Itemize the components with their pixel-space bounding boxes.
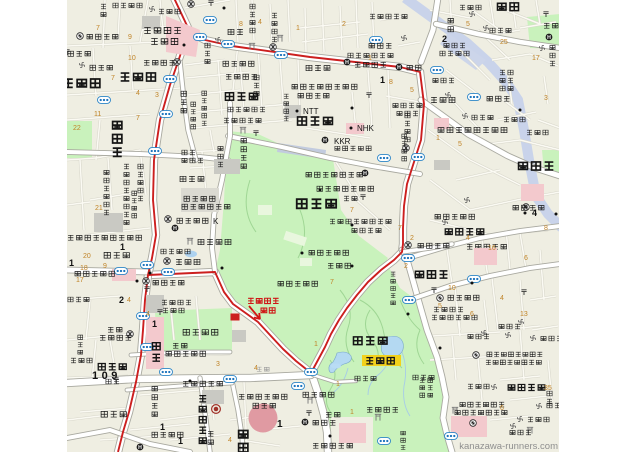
svg-text:10: 10 (128, 55, 136, 62)
svg-text:8: 8 (239, 21, 243, 28)
svg-text:4: 4 (228, 437, 232, 444)
svg-text:5: 5 (466, 21, 470, 28)
svg-text:7: 7 (330, 279, 334, 286)
svg-text:5: 5 (410, 87, 414, 94)
svg-text:H: H (363, 171, 367, 177)
svg-text:1: 1 (350, 409, 354, 416)
svg-text:6: 6 (500, 405, 504, 412)
svg-text:H: H (345, 60, 349, 66)
svg-text:10: 10 (448, 285, 456, 292)
svg-text:4: 4 (254, 365, 258, 372)
svg-text:25: 25 (500, 39, 508, 46)
svg-text:2: 2 (404, 263, 408, 270)
svg-text:4: 4 (466, 235, 470, 242)
svg-text:5: 5 (458, 141, 462, 148)
svg-text:H: H (323, 138, 327, 144)
svg-text:1: 1 (69, 258, 74, 268)
svg-text:3: 3 (216, 361, 220, 368)
svg-text:21: 21 (95, 205, 103, 212)
svg-text:17: 17 (76, 277, 84, 284)
svg-text:1: 1 (314, 341, 318, 348)
svg-text:7: 7 (96, 25, 100, 32)
svg-text:2: 2 (442, 34, 447, 44)
svg-text:6: 6 (524, 255, 528, 262)
svg-text:4: 4 (258, 19, 262, 26)
svg-text:3: 3 (155, 92, 159, 99)
svg-text:9: 9 (128, 34, 132, 41)
svg-text:1: 1 (178, 436, 183, 446)
svg-text:1: 1 (380, 75, 385, 85)
svg-text:20: 20 (83, 253, 91, 260)
svg-text:22: 22 (73, 125, 81, 132)
svg-text:1: 1 (160, 422, 165, 432)
svg-text:5: 5 (438, 303, 442, 310)
svg-text:K: K (213, 217, 219, 226)
svg-text:2: 2 (410, 235, 414, 242)
svg-text:1: 1 (120, 242, 125, 252)
svg-text:1: 1 (296, 25, 300, 32)
svg-text:4: 4 (136, 90, 140, 97)
svg-text:H: H (397, 65, 401, 71)
svg-text:1: 1 (436, 135, 440, 142)
svg-text:17: 17 (532, 55, 540, 62)
svg-text:NTT: NTT (303, 107, 319, 116)
svg-text:4: 4 (532, 208, 537, 218)
svg-text:2: 2 (119, 295, 124, 305)
svg-text:35: 35 (544, 385, 552, 392)
svg-text:NHK: NHK (357, 124, 375, 133)
svg-text:9: 9 (103, 263, 107, 270)
svg-text:8: 8 (389, 79, 393, 86)
svg-text:6: 6 (470, 311, 474, 318)
svg-text:H: H (547, 35, 551, 41)
svg-text:8: 8 (544, 225, 548, 232)
svg-text:1: 1 (277, 419, 283, 430)
svg-text:13: 13 (520, 311, 528, 318)
svg-text:1: 1 (368, 55, 372, 62)
svg-text:7: 7 (398, 225, 402, 232)
svg-text:1: 1 (336, 381, 340, 388)
svg-text:3: 3 (544, 95, 548, 102)
svg-text:4: 4 (146, 311, 150, 318)
svg-text:7: 7 (111, 75, 115, 82)
svg-text:4: 4 (500, 295, 504, 302)
svg-text:H: H (173, 226, 177, 232)
svg-text:kanazawa-runners.com: kanazawa-runners.com (459, 441, 558, 452)
svg-text:4: 4 (127, 297, 131, 304)
svg-text:1: 1 (152, 319, 157, 329)
svg-text:11: 11 (94, 111, 101, 118)
svg-text:7: 7 (350, 207, 354, 214)
svg-text:16: 16 (488, 245, 496, 252)
svg-text:7: 7 (136, 115, 140, 122)
svg-text:2: 2 (342, 21, 346, 28)
svg-text:18: 18 (80, 265, 88, 272)
svg-text:H: H (303, 420, 307, 426)
svg-text:H: H (138, 445, 142, 451)
svg-text:KKR: KKR (334, 137, 351, 146)
